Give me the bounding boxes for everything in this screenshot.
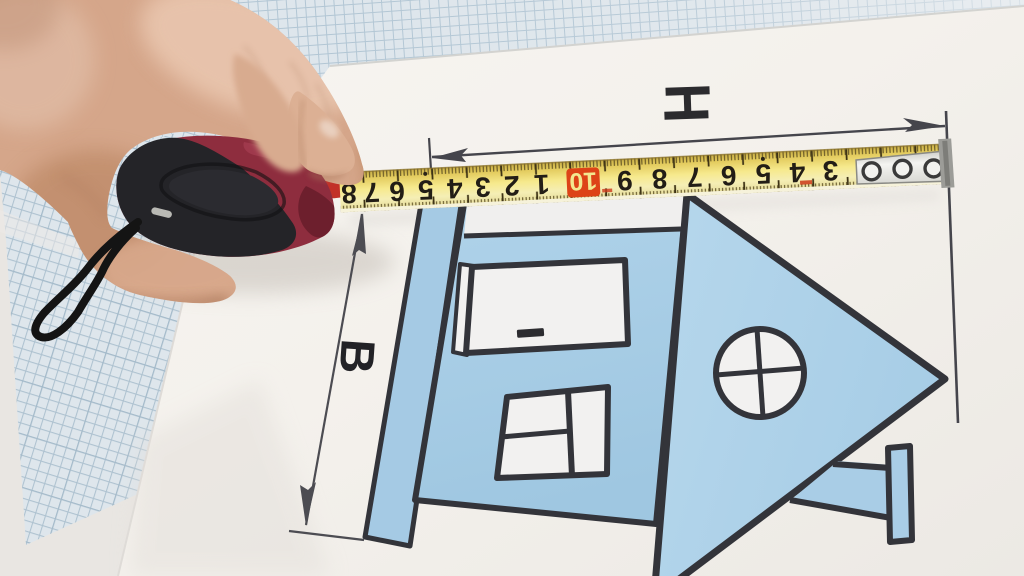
svg-text:2: 2 (503, 170, 520, 202)
svg-text:3: 3 (822, 155, 839, 187)
svg-text:6: 6 (720, 160, 737, 192)
svg-text:5: 5 (755, 158, 772, 190)
svg-text:10: 10 (569, 166, 598, 195)
svg-text:3: 3 (474, 171, 491, 203)
svg-text:5: 5 (417, 174, 434, 206)
svg-text:1: 1 (533, 169, 550, 201)
svg-text:B: B (329, 337, 384, 375)
svg-text:9: 9 (616, 165, 633, 197)
svg-text:7: 7 (364, 177, 381, 209)
svg-text:7: 7 (686, 161, 703, 193)
svg-text:6: 6 (389, 175, 406, 207)
svg-text:4: 4 (446, 173, 463, 205)
svg-text:8: 8 (651, 163, 668, 195)
